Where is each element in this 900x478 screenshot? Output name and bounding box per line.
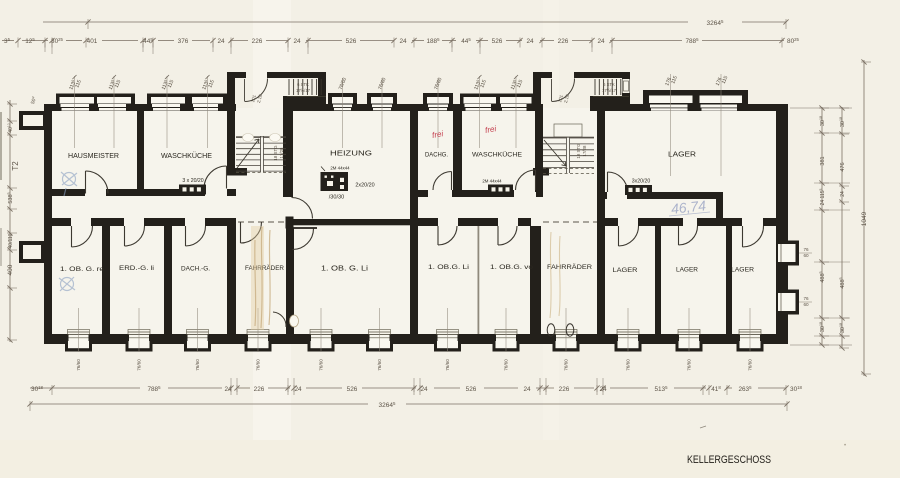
svg-text:18 STG: 18 STG (273, 145, 278, 161)
svg-text:76/60: 76/60 (377, 359, 382, 371)
svg-text:226: 226 (559, 386, 570, 393)
svg-text:376: 376 (178, 38, 189, 45)
svg-text:76/60: 76/60 (748, 359, 753, 371)
svg-text:3x20/20: 3x20/20 (632, 179, 651, 185)
svg-text:DACH.-G.: DACH.-G. (181, 266, 210, 273)
svg-text:24: 24 (217, 38, 225, 45)
svg-text:76/60: 76/60 (319, 359, 324, 371)
svg-text:76/60: 76/60 (564, 359, 569, 371)
svg-text:FAHRRÄDER: FAHRRÄDER (547, 263, 592, 271)
svg-text:381: 381 (820, 156, 826, 165)
svg-text:60: 60 (803, 253, 809, 258)
svg-text:400: 400 (7, 264, 14, 275)
svg-text:WASCHKÜCHE: WASCHKÜCHE (161, 152, 212, 160)
svg-text:401: 401 (87, 38, 98, 45)
svg-text:76/60: 76/60 (76, 359, 81, 371)
svg-text:1. OB.G. Li: 1. OB.G. Li (428, 264, 469, 271)
svg-text:1. OB. G. Li: 1. OB. G. Li (321, 266, 369, 273)
svg-text:•: • (844, 443, 846, 449)
svg-text:KELLERGESCHOSS: KELLERGESCHOSS (687, 454, 771, 466)
svg-text:526: 526 (492, 38, 503, 45)
svg-text:HEIZUNG: HEIZUNG (330, 149, 372, 158)
svg-text:ERD.-G. li: ERD.-G. li (119, 265, 154, 272)
svg-text:6 STK: 6 STK (297, 82, 309, 87)
svg-text:526: 526 (346, 38, 357, 45)
svg-text:LAGER: LAGER (668, 152, 696, 159)
svg-text:17½/17: 17½/17 (296, 88, 311, 93)
svg-text:76/60: 76/60 (445, 359, 450, 371)
svg-text:17/28: 17/28 (279, 147, 284, 159)
svg-text:526: 526 (466, 386, 477, 393)
svg-text:LAGER: LAGER (676, 267, 698, 274)
svg-text:76/60: 76/60 (687, 359, 692, 371)
svg-text:1049: 1049 (861, 211, 868, 226)
svg-text:3 x 20/20: 3 x 20/20 (182, 178, 203, 184)
svg-text:24: 24 (840, 191, 846, 197)
svg-text:/30/30: /30/30 (329, 195, 345, 201)
svg-text:226: 226 (254, 386, 265, 393)
svg-text:2M 44x44: 2M 44x44 (330, 166, 350, 171)
svg-text:76/60: 76/60 (626, 359, 631, 371)
svg-text:24: 24 (399, 38, 407, 45)
svg-text:18 STG: 18 STG (576, 143, 581, 159)
svg-text:LAGER: LAGER (613, 267, 638, 274)
svg-text:T2: T2 (11, 161, 20, 171)
svg-text:17½/17: 17½/17 (602, 88, 617, 93)
svg-text:1. OB. G. re: 1. OB. G. re (60, 266, 104, 273)
svg-text:24: 24 (597, 38, 605, 45)
svg-text:76/60: 76/60 (504, 359, 509, 371)
svg-text:24: 24 (293, 38, 301, 45)
svg-text:WASCHKÜCHE: WASCHKÜCHE (472, 151, 523, 159)
svg-text:24 1155: 24 1155 (819, 188, 826, 205)
svg-text:76/60: 76/60 (137, 359, 142, 371)
svg-text:DACHG.: DACHG. (425, 152, 448, 159)
svg-text:17/28: 17/28 (582, 145, 587, 157)
svg-text:76: 76 (803, 296, 809, 301)
svg-text:76/60: 76/60 (256, 359, 261, 371)
svg-text:1. OB.G. vo: 1. OB.G. vo (490, 264, 533, 271)
svg-text:2M 44x44: 2M 44x44 (482, 179, 502, 184)
svg-text:24: 24 (523, 386, 531, 393)
svg-text:LAGER: LAGER (731, 267, 754, 274)
svg-text:60: 60 (803, 302, 809, 307)
svg-text:76: 76 (803, 247, 809, 252)
svg-text:HAUSMEISTER: HAUSMEISTER (68, 153, 119, 160)
svg-text:226: 226 (252, 38, 263, 45)
svg-text:6 STK: 6 STK (603, 82, 615, 87)
svg-text:76/60: 76/60 (195, 359, 200, 371)
svg-text:FAHRRÄDER: FAHRRÄDER (245, 264, 284, 272)
svg-text:526: 526 (347, 386, 358, 393)
svg-text:40/110: 40/110 (8, 233, 14, 248)
svg-text:476: 476 (840, 162, 846, 171)
svg-text:24: 24 (526, 38, 534, 45)
svg-text:226: 226 (558, 38, 569, 45)
svg-text:2x20/20: 2x20/20 (355, 183, 374, 189)
